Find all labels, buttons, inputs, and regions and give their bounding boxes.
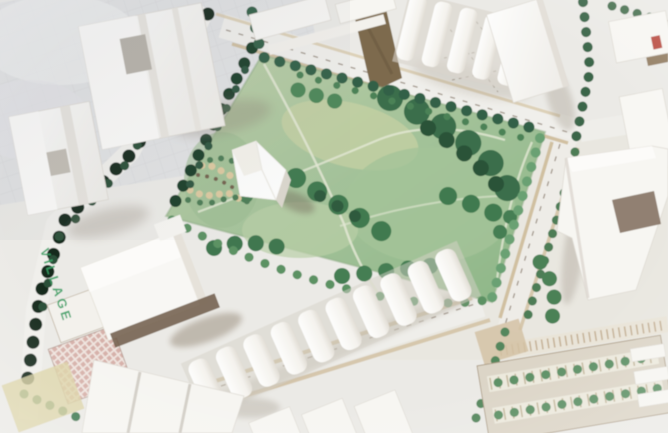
model-photograph: VILLAGE — [0, 0, 668, 433]
model-photo-svg: VILLAGE — [0, 0, 668, 433]
photo-vignette — [0, 0, 668, 433]
